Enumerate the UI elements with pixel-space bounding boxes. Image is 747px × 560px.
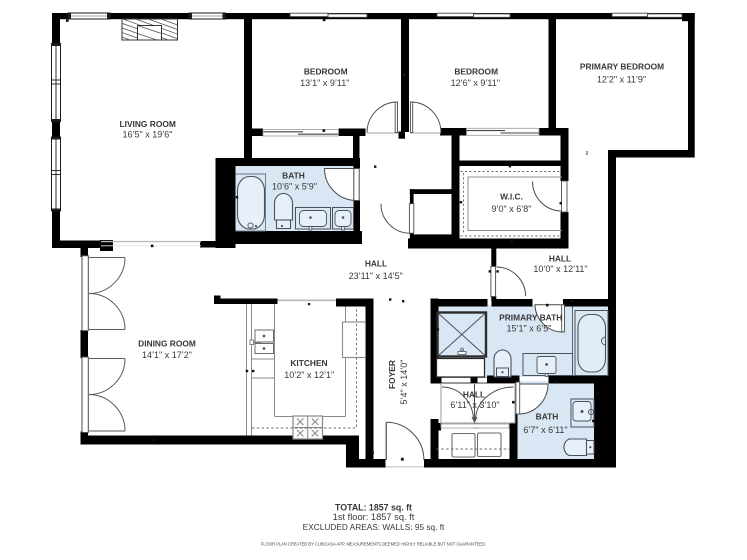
svg-text:14’1" x 17’2": 14’1" x 17’2"	[142, 350, 192, 360]
svg-text:9’0" x 6’8": 9’0" x 6’8"	[492, 204, 532, 214]
svg-text:FLOOR PLAN CREATED BY CUBICASA: FLOOR PLAN CREATED BY CUBICASA APP. MEAS…	[261, 542, 486, 547]
svg-text:10’6" x 5’9": 10’6" x 5’9"	[272, 182, 317, 192]
svg-text:HALL: HALL	[463, 389, 485, 399]
svg-text:23’11" x 14’5": 23’11" x 14’5"	[349, 271, 403, 281]
svg-text:FOYER: FOYER	[387, 360, 397, 389]
svg-text:13’1" x 9’11": 13’1" x 9’11"	[300, 78, 349, 88]
svg-text:BEDROOM: BEDROOM	[454, 67, 498, 77]
svg-text:12’2" x 11’9": 12’2" x 11’9"	[597, 75, 646, 85]
svg-text:PRIMARY BEDROOM: PRIMARY BEDROOM	[580, 61, 664, 71]
svg-text:BEDROOM: BEDROOM	[304, 67, 348, 77]
svg-text:10’0" x 12’11": 10’0" x 12’11"	[533, 264, 587, 274]
svg-text:z: z	[586, 151, 589, 157]
svg-text:DINING ROOM: DINING ROOM	[138, 338, 196, 348]
svg-text:10’2" x 12’1": 10’2" x 12’1"	[284, 370, 334, 380]
svg-text:BATH: BATH	[282, 170, 305, 180]
svg-text:HALL: HALL	[549, 253, 571, 263]
svg-text:HALL: HALL	[365, 258, 387, 268]
svg-text:EXCLUDED AREAS: WALLS: 95 sq.: EXCLUDED AREAS: WALLS: 95 sq. ft	[303, 522, 445, 532]
svg-text:1st floor: 1857 sq. ft: 1st floor: 1857 sq. ft	[333, 512, 415, 522]
svg-text:LIVING ROOM: LIVING ROOM	[120, 119, 176, 129]
svg-text:12’6" x 9’11": 12’6" x 9’11"	[451, 78, 500, 88]
svg-text:PRIMARY BATH: PRIMARY BATH	[499, 313, 562, 323]
svg-text:BATH: BATH	[536, 411, 559, 421]
svg-text:15’1" x 6’5": 15’1" x 6’5"	[507, 324, 552, 334]
svg-text:6’11" x 3’10": 6’11" x 3’10"	[450, 400, 499, 410]
svg-text:5’4" x 14’0": 5’4" x 14’0"	[399, 360, 409, 405]
svg-text:16’5" x 19’6": 16’5" x 19’6"	[123, 130, 173, 140]
svg-text:KITCHEN: KITCHEN	[290, 358, 327, 368]
svg-text:6’7" x 6’11": 6’7" x 6’11"	[523, 425, 567, 435]
svg-text:W.I.C.: W.I.C.	[500, 191, 523, 201]
